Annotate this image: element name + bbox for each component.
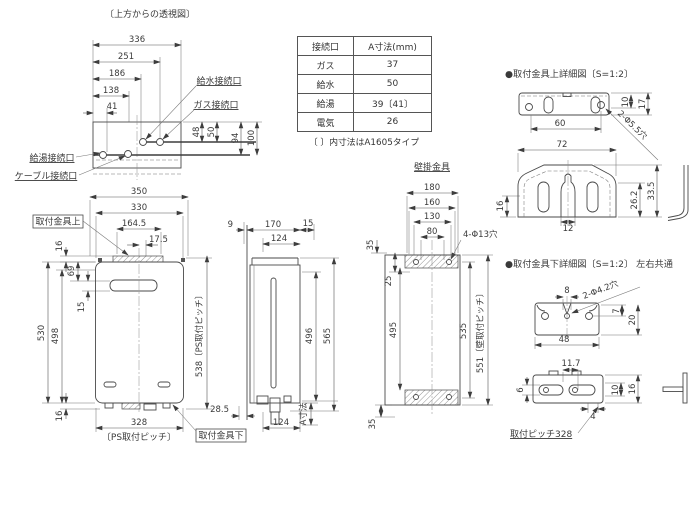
dim-180: 180	[424, 183, 440, 193]
dim-350: 350	[131, 187, 147, 197]
table-row: 電気 26	[298, 113, 432, 132]
bracket-lower-title: ●取付金具下詳細図〔S=1:2〕 左右共通	[505, 258, 673, 270]
dim-10: 10	[611, 385, 621, 396]
bracket-upper-title: ●取付金具上詳細図〔S=1:2〕	[505, 68, 633, 80]
dim-25: 25	[384, 276, 394, 287]
dim-328: 328	[131, 418, 147, 428]
table-row: ガス 37	[298, 56, 432, 75]
dim-26-2: 26.2	[630, 191, 640, 210]
holes-5-5-label: 2-Φ5.5穴	[615, 108, 650, 142]
dim-495: 495	[389, 322, 399, 338]
dim-33-5: 33.5	[647, 182, 657, 201]
bracket-lower-detail: ●取付金具下詳細図〔S=1:2〕 左右共通	[505, 258, 687, 440]
table-cell: 26	[354, 113, 432, 132]
side-pipe-cover	[271, 278, 276, 388]
table-cell: 39〔41〕	[354, 94, 432, 113]
bracket-front-shape	[518, 165, 616, 217]
dim-41: 41	[107, 102, 118, 112]
dim-336: 336	[129, 35, 145, 45]
dim-330: 330	[131, 203, 147, 213]
mount-pitch-label: 取付ピッチ328	[510, 429, 572, 440]
dim-10: 10	[621, 97, 631, 108]
dim-498: 498	[51, 328, 61, 344]
dim-565: 565	[323, 328, 333, 344]
table-cell: 給湯	[298, 94, 354, 113]
dim-16: 16	[628, 384, 638, 395]
table-cell: ガス	[298, 56, 354, 75]
dim-17: 17	[638, 99, 648, 110]
bracket-side-profile	[683, 373, 687, 403]
dim-72: 72	[557, 140, 568, 150]
dim-100: 100	[247, 130, 257, 146]
hotwater-port	[100, 152, 107, 159]
dim-6: 6	[516, 387, 526, 392]
holes-4-2-label: 2-Φ4.2穴	[581, 278, 620, 302]
extension-lines	[244, 222, 339, 432]
front-view: 350 330 164.5 17.5 16 69 15 530 498 16 5…	[33, 187, 255, 443]
gas-port-label: ガス接続口	[193, 99, 238, 111]
dim-535: 535	[459, 323, 469, 339]
dim-164-5: 164.5	[122, 219, 146, 229]
wall-bracket-title: 壁掛金具	[414, 161, 450, 173]
dim-130: 130	[424, 212, 440, 222]
table-cell: 50	[354, 75, 432, 94]
cable-port	[125, 151, 132, 158]
dim-551-wall-pitch: 551〔壁取付ピッチ〕	[475, 289, 486, 373]
dim-16-bottom: 16	[55, 411, 65, 422]
table-cell: 37	[354, 56, 432, 75]
table-cell: 給水	[298, 75, 354, 94]
water-port-label: 給水接続口	[196, 75, 241, 87]
dim-16: 16	[496, 201, 506, 212]
dim-160: 160	[424, 198, 440, 208]
connection-spec-table: 接続口 A寸法(mm) ガス 37 給水 50 給湯 39〔41〕 電気 26 …	[297, 36, 432, 148]
dim-28-5: 28.5	[210, 405, 229, 415]
dim-11-7: 11.7	[562, 359, 581, 369]
rear-view: 壁掛金具 180 160 130 80 4-Φ13穴	[366, 161, 498, 429]
dim-9: 9	[228, 220, 233, 230]
lower-bracket	[122, 403, 140, 409]
bracket-side-profile	[668, 165, 684, 218]
dim-a-label: A寸法	[298, 403, 309, 426]
dimension-lines	[236, 230, 334, 428]
dim-80: 80	[427, 227, 438, 237]
dim-16-top: 16	[55, 241, 65, 252]
table-header-port: 接続口	[298, 37, 354, 56]
gas-port	[157, 139, 164, 146]
dim-69: 69	[67, 266, 77, 277]
bracket-top-label: 取付金具上	[35, 216, 80, 228]
table-row: 給湯 39〔41〕	[298, 94, 432, 113]
unit-outline-side	[250, 265, 300, 403]
dim-15: 15	[303, 219, 314, 229]
hotwater-port-label: 給湯接続口	[29, 152, 74, 164]
dim-50: 50	[207, 127, 217, 138]
dim-4: 4	[590, 412, 595, 422]
dim-138: 138	[103, 86, 119, 96]
front-slot	[110, 280, 157, 291]
ps-pitch-note: 〔PS取付ピッチ〕	[102, 432, 176, 443]
water-port	[140, 139, 147, 146]
table-header-a-dim: A寸法(mm)	[354, 37, 432, 56]
dim-48: 48	[192, 127, 202, 138]
table-cell: 電気	[298, 113, 354, 132]
dim-7: 7	[612, 308, 622, 313]
dim-496: 496	[305, 328, 315, 344]
dim-8: 8	[564, 286, 569, 296]
dim-60: 60	[555, 119, 566, 129]
dim-124-bottom: 124	[273, 418, 289, 428]
dim-15: 15	[77, 302, 87, 313]
dim-12: 12	[563, 224, 574, 234]
bracket-upper-detail: ●取付金具上詳細図〔S=1:2〕 60	[496, 68, 688, 234]
cable-port-label: ケーブル接続口	[15, 170, 77, 182]
dim-538-ps-pitch: 538〔PS取付ピッチ〕	[194, 291, 205, 377]
dim-35-bottom: 35	[368, 419, 378, 430]
table-row: 給水 50	[298, 75, 432, 94]
dim-48: 48	[559, 335, 570, 345]
side-view: 9 170 15 124 496 565 124 A寸法	[228, 219, 339, 432]
dim-186: 186	[109, 69, 125, 79]
dim-251: 251	[118, 52, 134, 62]
extension-lines	[42, 200, 239, 432]
technical-drawing-page: 〔上方からの透視図〕 336 251 186 138 41 48 50 94 1…	[0, 0, 700, 516]
top-perspective-view: 〔上方からの透視図〕 336 251 186 138 41 48 50 94 1…	[15, 8, 262, 182]
dim-170: 170	[265, 220, 281, 230]
dim-17-5: 17.5	[149, 235, 168, 245]
upper-bracket	[113, 256, 163, 262]
top-view-title: 〔上方からの透視図〕	[105, 8, 195, 20]
dim-20: 20	[628, 315, 638, 326]
holes-4-13-label: 4-Φ13穴	[463, 229, 498, 240]
dim-35-top: 35	[366, 240, 376, 251]
dim-124-top: 124	[271, 234, 287, 244]
dim-530: 530	[37, 325, 47, 341]
table-note: 〔 〕内寸法はA1605タイプ	[297, 135, 431, 148]
bracket-bottom-label: 取付金具下	[198, 430, 243, 442]
